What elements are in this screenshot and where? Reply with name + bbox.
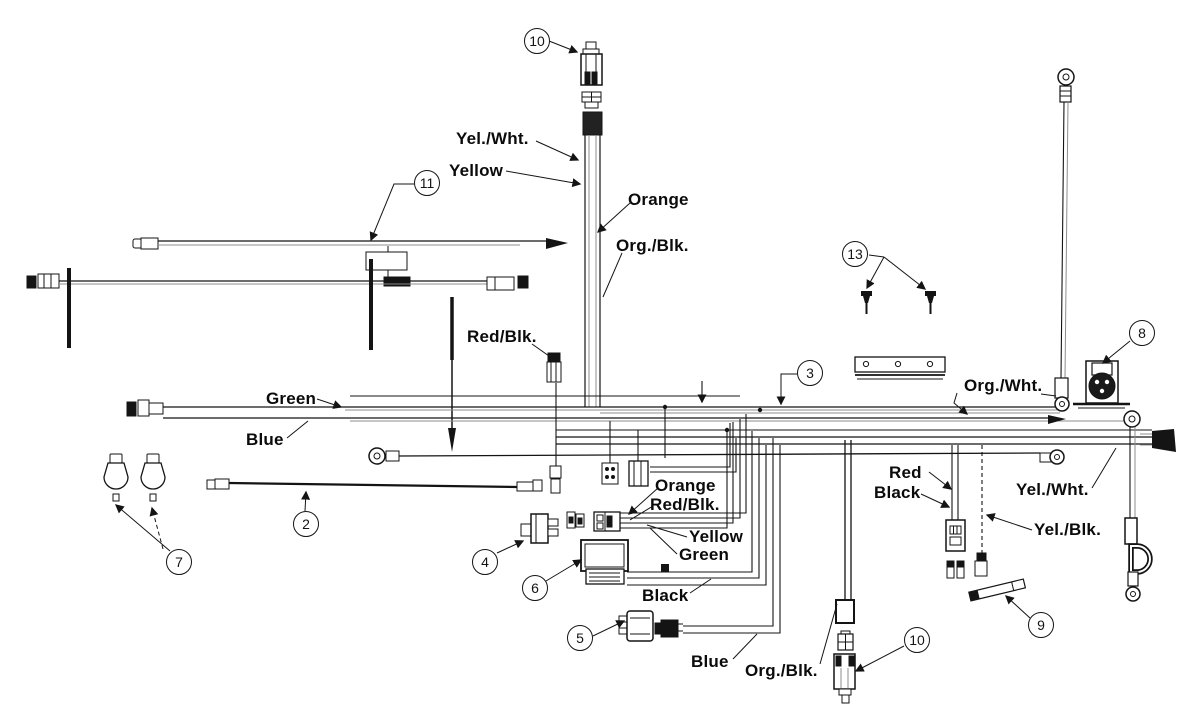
callout-7: 7 <box>166 549 192 575</box>
wire-label-blue-left: Blue <box>246 431 284 448</box>
grommet-loop-cable <box>1124 411 1150 601</box>
inline-connector <box>629 461 648 486</box>
splice-block <box>661 564 669 572</box>
harness-loop-wires <box>556 381 982 633</box>
control-module <box>581 540 628 584</box>
callout-9: 9 <box>1028 612 1054 638</box>
choke-cable <box>207 479 542 491</box>
green-blue-connector <box>127 400 163 416</box>
blue-wire-end-connector <box>1048 415 1066 424</box>
callout-5: 5 <box>567 625 593 651</box>
spark-plug-cap-top <box>581 42 602 108</box>
yel-blk-cap-connector <box>975 553 987 576</box>
wire-label-org-blk-top: Org./Blk. <box>616 237 689 254</box>
wire-label-yel-wht-right: Yel./Wht. <box>1016 481 1089 498</box>
callout-13: 13 <box>842 241 868 267</box>
cable-tie-bars <box>67 259 373 350</box>
wire-label-org-blk-bottom: Org./Blk. <box>745 662 818 679</box>
callout-10-bottom: 10 <box>904 627 930 653</box>
callout-10-top: 10 <box>524 28 550 54</box>
wire-label-blue-bottom: Blue <box>691 653 729 670</box>
ignition-harness-tube <box>583 112 602 407</box>
push-pin-fasteners <box>861 291 936 314</box>
link-rod <box>969 579 1026 601</box>
solenoid <box>1073 361 1130 408</box>
long-cable-lower <box>27 274 528 290</box>
key-switch <box>521 514 558 543</box>
red-blk-drop-connector <box>547 353 561 493</box>
four-pin-connector <box>567 512 584 528</box>
wire-label-red-right: Red <box>889 464 922 481</box>
spark-plug-cap-bottom <box>834 600 855 703</box>
hub-connector <box>594 512 620 531</box>
wire-label-green-mid: Green <box>679 546 729 563</box>
small-pin-connector <box>602 458 618 484</box>
bundle-end-connector <box>1140 429 1176 452</box>
callout-4: 4 <box>472 549 498 575</box>
wire-label-green-left: Green <box>266 390 316 407</box>
wiring-diagram: Yel./Wht. Yellow Orange Org./Blk. Red/Bl… <box>0 0 1200 722</box>
wire-label-orange-mid: Orange <box>655 477 716 494</box>
indicator-bulbs <box>104 454 165 501</box>
wire-label-yel-wht-top: Yel./Wht. <box>456 130 529 147</box>
wire-label-black-mid: Black <box>642 587 688 604</box>
wire-label-yellow-mid: Yellow <box>689 528 743 545</box>
wire-label-red-blk-mid: Red/Blk. <box>650 496 720 513</box>
wire-label-yellow-top: Yellow <box>449 162 503 179</box>
callout-3: 3 <box>797 360 823 386</box>
callout-8: 8 <box>1129 320 1155 346</box>
ground-cable <box>1055 69 1074 411</box>
safety-switch <box>619 611 683 641</box>
mounting-bracket <box>855 357 945 379</box>
wire-label-black-right: Black <box>874 484 920 501</box>
wire-label-yel-blk-right: Yel./Blk. <box>1034 521 1101 538</box>
callout-11: 11 <box>414 170 440 196</box>
harness-artwork <box>0 0 1200 722</box>
wire-label-red-blk-top: Red/Blk. <box>467 328 537 345</box>
probe-rod <box>448 297 456 452</box>
wire-label-org-wht: Org./Wht. <box>964 377 1042 394</box>
callout-6: 6 <box>522 575 548 601</box>
callout-2: 2 <box>293 511 319 537</box>
wire-label-orange-top: Orange <box>628 191 689 208</box>
red-black-connector <box>946 520 965 578</box>
